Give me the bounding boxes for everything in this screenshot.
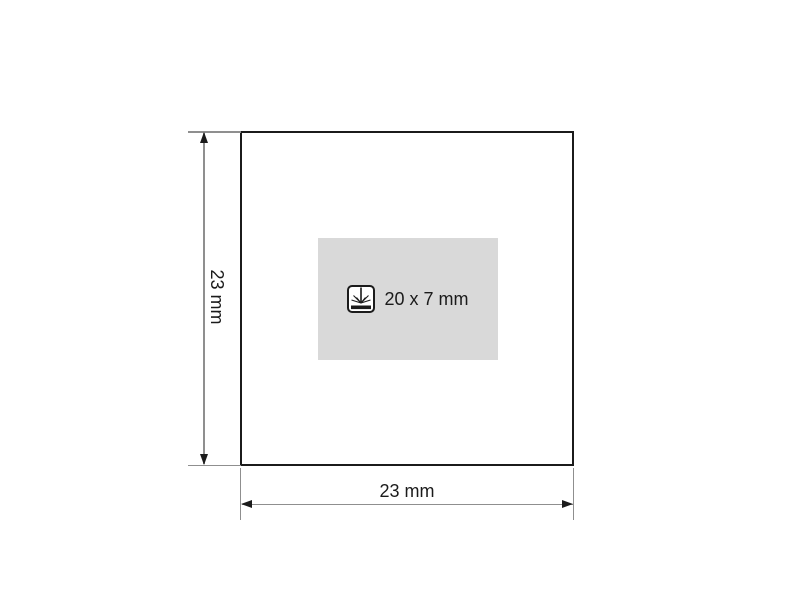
arrowhead-up-icon — [200, 132, 208, 143]
height-extension-line-bottom — [188, 465, 241, 467]
height-dimension-line — [203, 133, 205, 464]
imprint-area-diagram: 20 x 7 mm 23 mm 23 mm — [0, 0, 800, 600]
height-extension-line-top — [188, 131, 241, 133]
print-area: 20 x 7 mm — [318, 238, 498, 360]
arrowhead-left-icon — [241, 500, 252, 508]
width-dimension-label: 23 mm — [379, 482, 434, 500]
arrowhead-down-icon — [200, 454, 208, 465]
height-dimension-label: 23 mm — [208, 269, 226, 324]
print-area-size-label: 20 x 7 mm — [384, 290, 468, 308]
arrowhead-right-icon — [562, 500, 573, 508]
width-dimension-line — [242, 504, 573, 506]
width-extension-line-left — [240, 468, 242, 520]
width-extension-line-right — [573, 468, 575, 520]
laser-engraving-icon — [347, 285, 375, 313]
